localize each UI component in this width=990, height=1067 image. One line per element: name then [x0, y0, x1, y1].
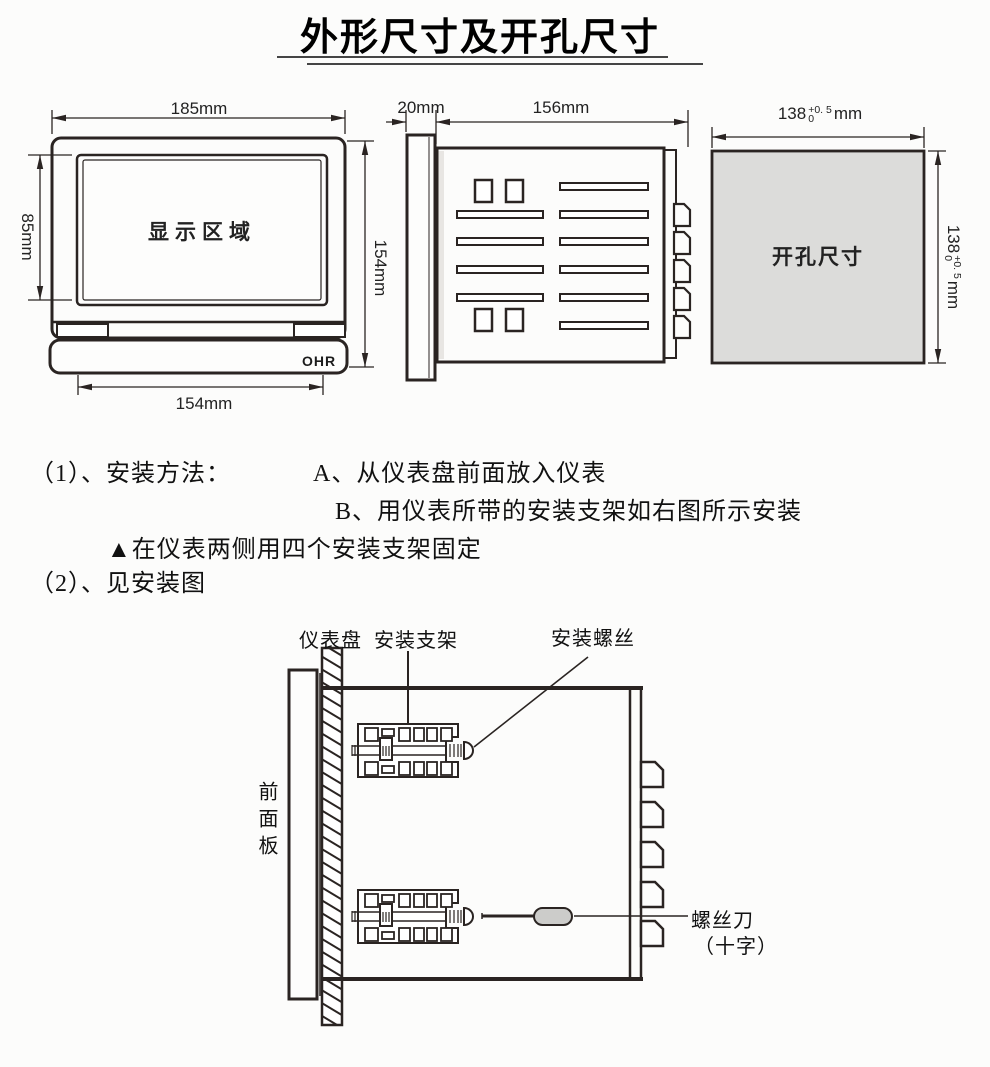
screwdriver	[482, 908, 572, 925]
screw-leader	[474, 657, 588, 747]
square-vents	[475, 180, 523, 331]
dim-label-154mm-width: 154mm	[176, 394, 233, 414]
dim-138-unit-2: mm	[943, 281, 963, 309]
display-area-label: 显示区域	[148, 216, 256, 246]
dim-label-138mm-top: 138+0. 50mm	[778, 104, 862, 124]
vent-slots-left	[457, 211, 543, 301]
bracket-label: 安装支架	[374, 624, 458, 653]
dim-138-unit: mm	[834, 104, 862, 124]
vent-slots-right	[560, 183, 648, 329]
panel-hatch	[322, 648, 342, 1025]
tolerance-lower-2: 0	[943, 255, 952, 261]
screwdriver-handle	[534, 908, 572, 925]
cutout-label: 开孔尺寸	[772, 241, 864, 271]
instruction-step-a: A、从仪表盘前面放入仪表	[313, 453, 606, 488]
dim-label-154mm-height: 154mm	[370, 240, 390, 297]
left-latch	[57, 324, 108, 337]
screw-head	[464, 742, 473, 759]
dim-label-185mm: 185mm	[171, 99, 228, 119]
dim-138-value: 138	[778, 104, 806, 124]
install-diagram-drawing	[289, 648, 688, 1025]
screw-label: 安装螺丝	[551, 622, 635, 651]
screwdriver-label: 螺丝刀	[691, 904, 754, 933]
ohr-logo: OHR	[302, 353, 336, 369]
instruction-item2: （2）、见安装图	[30, 563, 206, 598]
dim-label-85mm: 85mm	[17, 213, 37, 260]
side-bezel	[407, 135, 435, 380]
instruction-step-b: B、用仪表所带的安装支架如右图所示安装	[335, 491, 802, 526]
instruction-item1: （1）、安装方法：	[30, 453, 231, 488]
dim-138-value-2: 138	[943, 225, 963, 253]
dim-label-156mm: 156mm	[533, 98, 590, 118]
front-panel	[289, 670, 317, 999]
panel-label: 仪表盘	[299, 624, 362, 653]
manual-page: 外形尺寸及开孔尺寸	[0, 0, 990, 1067]
dim-label-20mm: 20mm	[397, 98, 444, 118]
instruction-note: ▲在仪表两侧用四个安装支架固定	[107, 529, 482, 564]
rear-terminals	[641, 762, 663, 946]
dim-label-138mm-right: 138+0. 50mm	[943, 225, 963, 309]
side-view-drawing	[386, 110, 690, 380]
screw-thread	[446, 744, 461, 757]
terminal-connectors	[674, 204, 690, 338]
tolerance-lower: 0	[808, 115, 814, 124]
mounting-bracket-top	[352, 724, 473, 777]
right-latch	[294, 324, 345, 337]
front-panel-label: 前面板	[252, 781, 281, 862]
mounting-bracket-bottom	[352, 890, 473, 943]
screwdriver-type-label: （十字）	[694, 930, 778, 959]
